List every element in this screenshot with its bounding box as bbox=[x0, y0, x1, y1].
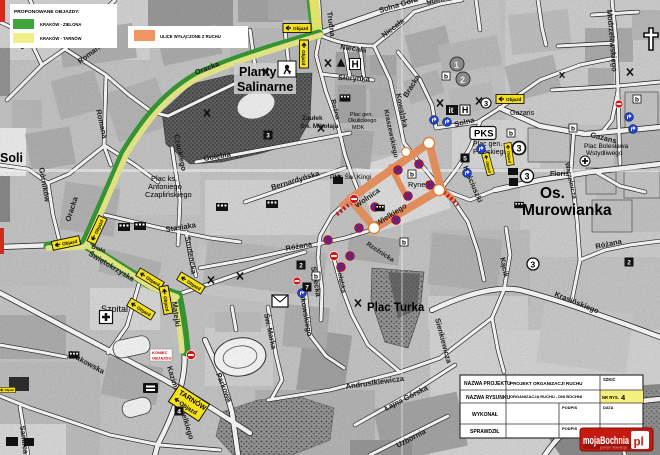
svg-text:Zaułek: Zaułek bbox=[302, 115, 323, 122]
svg-text:3: 3 bbox=[517, 144, 522, 154]
svg-text:3: 3 bbox=[531, 260, 536, 270]
svg-text:KRAKÓW - ZIELONA: KRAKÓW - ZIELONA bbox=[40, 22, 81, 27]
svg-text:PODPIS: PODPIS bbox=[562, 405, 577, 410]
svg-text:NR RYS.: NR RYS. bbox=[602, 395, 619, 400]
svg-text:3: 3 bbox=[266, 133, 270, 140]
svg-text:SZKIC: SZKIC bbox=[603, 377, 616, 382]
svg-text:Murowianka: Murowianka bbox=[522, 202, 612, 219]
svg-text:NAZWA PROJEKTU: NAZWA PROJEKTU bbox=[464, 381, 511, 387]
svg-text:KONIEC: KONIEC bbox=[152, 350, 168, 355]
svg-text:Gazaris: Gazaris bbox=[510, 110, 535, 117]
svg-text:DATA: DATA bbox=[603, 405, 614, 410]
svg-text:Salinarne: Salinarne bbox=[237, 80, 293, 94]
svg-text:H: H bbox=[462, 105, 469, 115]
svg-text:it: it bbox=[449, 106, 454, 115]
svg-text:ULICE WYŁĄCZONE Z RUCHU: ULICE WYŁĄCZONE Z RUCHU bbox=[160, 34, 221, 39]
svg-text:PROPONOWANE OBJAZDY:: PROPONOWANE OBJAZDY: bbox=[14, 9, 80, 15]
svg-text:Czaplińskiego: Czaplińskiego bbox=[145, 190, 192, 199]
svg-text:5: 5 bbox=[463, 156, 467, 163]
svg-text:SPRAWDZIŁ: SPRAWDZIŁ bbox=[470, 429, 499, 435]
svg-text:Plac Bolesława: Plac Bolesława bbox=[584, 143, 628, 150]
svg-text:portal i telewizja: portal i telewizja bbox=[600, 446, 628, 450]
svg-text:pl: pl bbox=[634, 437, 644, 449]
svg-text:OBJAZDU: OBJAZDU bbox=[152, 356, 171, 361]
svg-text:PKS: PKS bbox=[474, 129, 494, 140]
svg-text:7: 7 bbox=[305, 285, 309, 292]
svg-text:1: 1 bbox=[454, 60, 459, 70]
svg-text:2: 2 bbox=[299, 263, 303, 270]
svg-text:WYKONAŁ: WYKONAŁ bbox=[472, 412, 498, 418]
svg-text:2: 2 bbox=[627, 260, 631, 267]
svg-text:Planty: Planty bbox=[239, 65, 277, 79]
svg-text:Plac Turka: Plac Turka bbox=[367, 302, 425, 314]
svg-text:ORGANIZACJA RUCHU - DNI BOCHNI: ORGANIZACJA RUCHU - DNI BOCHNI bbox=[510, 394, 582, 399]
svg-text:2: 2 bbox=[460, 75, 465, 85]
svg-text:3: 3 bbox=[525, 172, 530, 182]
svg-text:KRAKÓW - TARNÓW: KRAKÓW - TARNÓW bbox=[40, 36, 82, 41]
svg-text:MDK: MDK bbox=[352, 125, 365, 131]
svg-text:Słorynka: Słorynka bbox=[338, 73, 371, 83]
svg-text:Soli: Soli bbox=[0, 151, 23, 165]
svg-text:PODPIS: PODPIS bbox=[562, 426, 577, 431]
svg-text:4: 4 bbox=[177, 409, 181, 416]
svg-text:3: 3 bbox=[484, 99, 488, 108]
svg-text:Os.: Os. bbox=[540, 185, 565, 202]
svg-text:Wstydliwego: Wstydliwego bbox=[586, 150, 623, 157]
svg-text:PROJEKT ORGANIZACJI RUCHU: PROJEKT ORGANIZACJI RUCHU bbox=[510, 381, 583, 386]
svg-text:Okulickiego: Okulickiego bbox=[348, 118, 376, 124]
svg-text:H: H bbox=[352, 60, 359, 71]
svg-text:NAZWA RYSUNKU: NAZWA RYSUNKU bbox=[466, 395, 510, 401]
